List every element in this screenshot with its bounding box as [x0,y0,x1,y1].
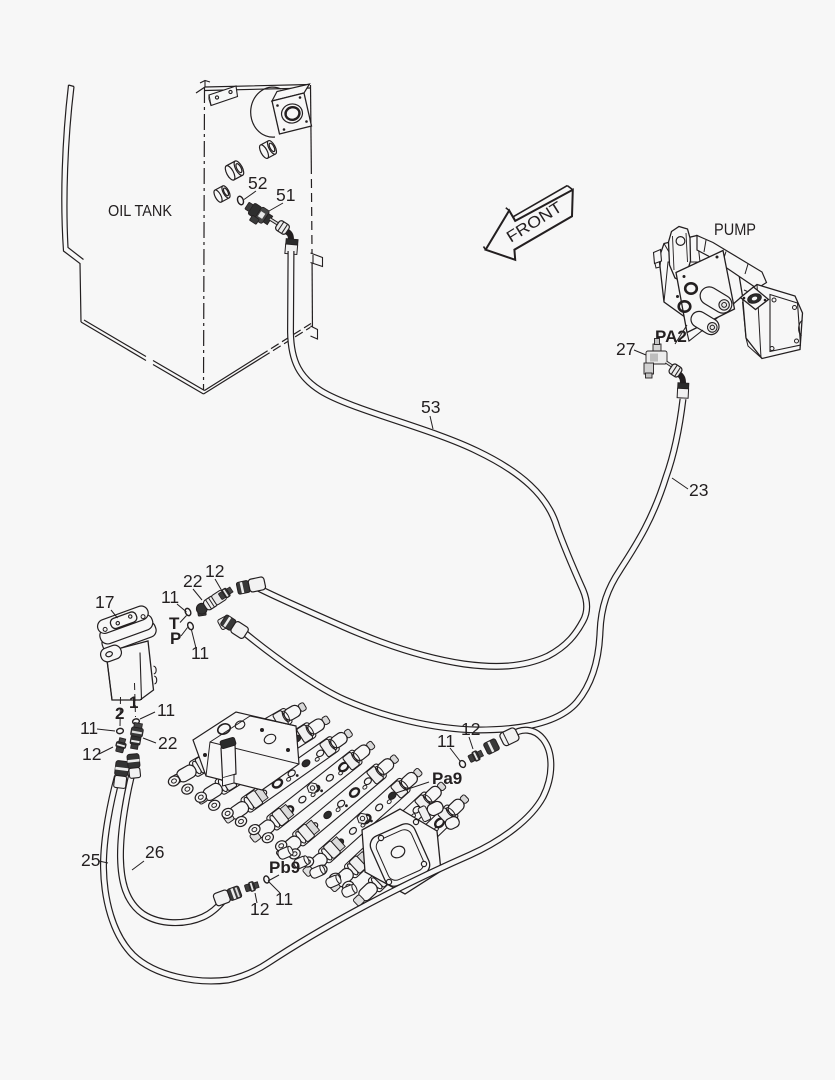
svg-text:51: 51 [276,185,295,205]
svg-text:Pb9: Pb9 [269,858,300,877]
svg-text:2: 2 [115,704,124,723]
svg-text:1: 1 [129,693,138,712]
svg-text:17: 17 [95,592,114,612]
svg-text:11: 11 [275,889,293,909]
svg-text:53: 53 [421,397,440,417]
svg-text:52: 52 [248,173,267,193]
svg-text:25: 25 [81,850,100,870]
svg-text:22: 22 [158,733,177,753]
svg-text:23: 23 [689,480,708,500]
svg-text:OIL TANK: OIL TANK [108,203,172,220]
svg-text:27: 27 [616,339,635,359]
svg-text:11: 11 [191,643,209,663]
svg-text:12: 12 [205,561,224,581]
svg-text:Pa9: Pa9 [432,769,462,788]
svg-text:11: 11 [161,587,179,607]
svg-text:12: 12 [461,719,480,739]
svg-text:11: 11 [437,731,455,751]
svg-text:22: 22 [183,571,202,591]
svg-text:PUMP: PUMP [714,221,756,239]
svg-text:11: 11 [157,700,175,720]
svg-text:12: 12 [250,899,269,919]
svg-text:11: 11 [80,718,98,738]
svg-text:12: 12 [82,744,101,764]
svg-text:26: 26 [145,842,164,862]
svg-text:P: P [170,629,181,648]
